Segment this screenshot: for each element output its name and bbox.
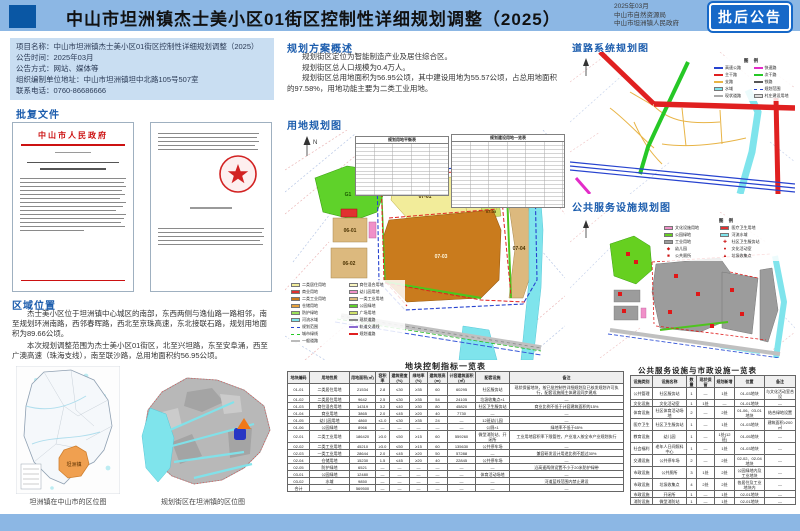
legend-label: 广场用地: [360, 310, 376, 316]
doc-text-line: [20, 182, 124, 183]
table-cell: 二类居住用地: [310, 396, 350, 403]
legend-item: 文化设施用地: [664, 225, 717, 231]
landuse-balance-mini-table: 规划用地平衡表: [355, 136, 449, 196]
legend-label: 河流水域: [302, 317, 318, 323]
legend-item: ●文化活动室: [720, 246, 790, 252]
table-cell: 6521: [350, 464, 376, 471]
data-table: 地块编码用地性质用地面积(㎡)容积率建筑密度(%)绿地率(%)建筑限高(m)计容…: [287, 371, 624, 492]
table-cell: 各居住及工业地块内: [735, 479, 765, 491]
table-cell: —: [510, 485, 624, 492]
legend-item: 河流水域: [291, 317, 346, 323]
data-table: 设施类别设施名称数量现状保留规划新增位置备注公共管理社区服务站1—1处01-03…: [630, 375, 796, 505]
table-row: 02-02二类工业用地45210≥3.0≤50≥1560135630公共停车场—: [288, 443, 624, 450]
column-header: 用地面积(㎡): [350, 372, 376, 384]
table-cell: ≥35: [410, 396, 428, 403]
table-cell: 市政设施: [631, 479, 653, 491]
legend-label: 现状道路: [360, 317, 376, 323]
doc-text-line: [158, 149, 258, 150]
table-cell: 01-03地块: [735, 443, 765, 455]
table-row: 社会福利老年人日间照料中心1—1处01-03地块—: [631, 443, 796, 455]
table-cell: 社区服务站: [476, 384, 510, 396]
table-cell: 135630: [448, 443, 476, 450]
legend-item: 主干路: [714, 72, 751, 78]
legend-swatch: [291, 334, 300, 335]
legend-item: 二类居住用地: [291, 282, 346, 288]
table-cell: —: [428, 478, 448, 485]
table-row: 01-03商住混合用地143193.2≤40≥308045820社区卫生服务站商…: [288, 403, 624, 410]
publish-date: 2025年03月: [614, 3, 679, 12]
doc-text-line: [158, 141, 259, 142]
text-line: 规划街区定位为智能制造产业及居住综合区。: [287, 52, 563, 63]
table-cell: 3865: [350, 410, 376, 417]
legend-item: 快速路: [754, 65, 791, 71]
doc-body-text: [20, 175, 126, 233]
parcel-label: 06-02: [343, 261, 356, 267]
publisher-info: 2025年03月 中山市自然资源局 中山市坦洲镇人民政府: [614, 3, 679, 29]
legend-swatch: [714, 67, 723, 69]
table-cell: ≥35: [410, 417, 428, 424]
table-cell: 公共停车场: [476, 457, 510, 464]
table-cell: 二类居住用地: [310, 384, 350, 396]
legend-label: 公园绿地: [360, 303, 376, 309]
table-cell: 2: [687, 455, 697, 467]
table-row: 02-03一类工业用地286442.0≤45≥205057288—兼容研发设计用…: [288, 450, 624, 457]
table-cell: 40: [428, 457, 448, 464]
text-line: 规划街区总用地面积为56.95公顷，其中建设用地为55.57公顷，占总用地面积的…: [287, 73, 563, 94]
table-cell: ≤1.0: [376, 417, 390, 424]
table-cell: 1: [687, 498, 697, 505]
table-cell: 与文化活动室合设: [765, 388, 796, 400]
block-control-table: 地块编码用地性质用地面积(㎡)容积率建筑密度(%)绿地率(%)建筑限高(m)计容…: [287, 371, 623, 492]
table-cell: 社区卫生服务站: [476, 403, 510, 410]
table-cell: 微型消防站、开闭所: [476, 431, 510, 443]
doc-subject-line: [40, 168, 106, 169]
table-row: 市政设施公共厕所31处2处公园绿地内及工业地块—: [631, 467, 796, 479]
legend-item: 公园绿地: [664, 232, 717, 238]
column-header: 数量: [687, 376, 697, 388]
landuse-map-legend: 二类居住用地商住混合用地商业用地幼儿园用地二类工业用地一类工业用地仓储用地公园绿…: [289, 280, 405, 346]
table-cell: ≤40: [390, 403, 410, 410]
table-cell: 01-05地块: [735, 431, 765, 443]
table-row: 体育设施社区体育活动场地2—2处01-06、03-01地块结合绿地设置: [631, 407, 796, 419]
table-cell: 9642: [350, 396, 376, 403]
legend-label: 轨道交通线: [360, 324, 380, 330]
table-cell: —: [697, 455, 715, 467]
legend-symbol-icon: ✚: [720, 240, 729, 245]
table-cell: 01-05: [288, 417, 310, 424]
table-cell: 186420: [350, 431, 376, 443]
table-cell: 1: [687, 419, 697, 431]
legend-item: 一类工业用地: [349, 296, 404, 302]
column-header: 位置: [735, 376, 765, 388]
official-seal-icon: [217, 153, 259, 195]
table-cell: —: [448, 485, 476, 492]
table-cell: —: [410, 485, 428, 492]
table-cell: —: [390, 485, 410, 492]
legend-item: 商业用地: [291, 289, 346, 295]
doc-sign-line: [190, 207, 232, 208]
table-cell: ≤50: [390, 443, 410, 450]
column-header: 备注: [510, 372, 624, 384]
table-cell: 体育活动场地: [476, 471, 510, 478]
table-cell: 文化设施: [631, 400, 653, 407]
table-cell: 80: [428, 403, 448, 410]
table-row: 02-05防护绿地6521——————沿高速两侧设置不小于20米防护绿带: [288, 464, 624, 471]
legend-title: 图 例: [714, 58, 790, 64]
legend-label: 水域: [725, 86, 733, 92]
doc-text-line: [158, 244, 263, 245]
region-description: 杰士美小区位于坦洲镇中心城区的南部，东西两侧与逸仙路一路相邻，南至规划环洲南路，…: [12, 309, 274, 363]
table-cell: 2处: [715, 467, 735, 479]
legend-item: 一般道路: [291, 338, 346, 344]
doc-footer-text: [158, 225, 264, 248]
legend-symbol-icon: ◆: [664, 247, 673, 252]
legend-item: 仓储用地: [291, 303, 346, 309]
table-cell: 河道蓝线范围内禁止建设: [510, 478, 624, 485]
text-line: 公告时间：2025年03月: [16, 52, 268, 63]
table-cell: 社区卫生服务站: [653, 419, 687, 431]
table-cell: —: [697, 431, 715, 443]
table-cell: ≤45: [390, 457, 410, 464]
table-row: 教育设施幼儿园1—1处(12班)01-05地块—: [631, 431, 796, 443]
doc-text-line: [20, 186, 126, 187]
table-cell: 2: [687, 407, 697, 419]
doc-title: 中山市人民政府: [20, 130, 126, 141]
table-cell: 老年人日间照料中心: [653, 443, 687, 455]
table-row: 文化设施文化活动室11处—01-01地块—: [631, 400, 796, 407]
column-header: 备注: [765, 376, 796, 388]
legend-item: 河流水域: [720, 232, 790, 238]
mini-table-title: 规划用地平衡表: [356, 137, 448, 144]
text-line: 项目名称：中山市坦洲镇杰士美小区01街区控制性详细规划调整（2025）: [16, 41, 268, 52]
doc-text-line: [20, 178, 126, 179]
table-cell: —: [410, 478, 428, 485]
table-cell: 仓储用地: [310, 457, 350, 464]
parcel-label: 07-04: [513, 246, 526, 252]
table-cell: 1处: [715, 498, 735, 505]
table-cell: 社会福利: [631, 443, 653, 455]
legend-label: 二类居住用地: [302, 282, 326, 288]
table-row: 03-02水域9850——————河道蓝线范围内禁止建设: [288, 478, 624, 485]
table-cell: 1: [687, 431, 697, 443]
table-cell: 教育设施: [631, 431, 653, 443]
table-cell: —: [410, 471, 428, 478]
table-cell: 1.5: [376, 457, 390, 464]
column-header: 规划新增: [715, 376, 735, 388]
table-cell: 公共管理: [631, 388, 653, 400]
table-cell: 12班幼儿园: [476, 417, 510, 424]
legend-label: 城市绿线: [302, 331, 318, 337]
table-cell: 公共停车场: [653, 455, 687, 467]
table-cell: 1处: [715, 443, 735, 455]
table-cell: 50: [428, 450, 448, 457]
caption-town-map: 规划街区在坦洲镇的区位图: [132, 497, 274, 507]
legend-swatch: [349, 283, 358, 287]
legend-item: 水域: [714, 86, 751, 92]
legend-label: 医疗卫生用地: [731, 225, 755, 231]
legend-label: 次干路: [765, 72, 777, 78]
legend-swatch: [714, 74, 723, 76]
legend-swatch: [291, 283, 300, 287]
doc-text-line: [20, 222, 121, 223]
legend-swatch: [349, 333, 358, 335]
table-cell: 社区体育活动场地: [653, 407, 687, 419]
table-cell: 01-01: [288, 384, 310, 396]
table-cell: ≤30: [390, 384, 410, 396]
table-cell: 交通设施: [631, 455, 653, 467]
legend-swatch: [754, 89, 763, 90]
table-cell: 2.0: [376, 450, 390, 457]
approval-doc-page-2: [150, 122, 272, 292]
table-cell: 7730: [448, 410, 476, 417]
text-line: 联系电话：0760-86686666: [16, 85, 268, 96]
table-cell: 幼儿园用地: [310, 417, 350, 424]
doc-text-line: [20, 194, 125, 195]
table-cell: 15230: [350, 457, 376, 464]
table-cell: 40: [428, 410, 448, 417]
facilities-map-legend: 图 例 文化设施用地医疗卫生用地公园绿地河流水域工业用地 ✚社区卫生服务站◆幼儿…: [662, 216, 792, 261]
table-cell: —: [510, 471, 624, 478]
doc-text-line: [158, 236, 264, 237]
table-row: 01-01二类居住用地215342.8≤30≥356060295社区服务站现状保…: [288, 384, 624, 396]
doc-text-line: [20, 230, 84, 231]
legend-swatch: [291, 304, 300, 308]
parcel-label: 06-01: [344, 228, 357, 234]
table-cell: —: [765, 443, 796, 455]
table-cell: 二类工业用地: [310, 431, 350, 443]
text-line: 公告方式：网站、媒体等: [16, 63, 268, 74]
doc-text-line: [158, 145, 255, 146]
table-cell: —: [390, 478, 410, 485]
table-cell: 12480: [350, 471, 376, 478]
table-cell: 公厕×1: [476, 424, 510, 431]
legend-item: 幼儿园用地: [349, 289, 404, 295]
legend-item: 规划道路: [349, 331, 404, 337]
table-cell: 01-03地块: [735, 419, 765, 431]
doc-text-line: [158, 133, 259, 134]
table-cell: 01-02: [288, 396, 310, 403]
table-row: 公共管理社区服务站1—1处01-03地块与文化活动室合设: [631, 388, 796, 400]
table-cell: —: [476, 485, 510, 492]
legend-swatch: [664, 226, 673, 230]
table-cell: —: [510, 417, 624, 424]
legend-label: 规划范围: [765, 86, 781, 92]
table-cell: ≥15: [410, 431, 428, 443]
table-cell: 垃圾收集点: [653, 479, 687, 491]
table-cell: —: [697, 491, 715, 498]
table-cell: 3: [687, 467, 697, 479]
legend-label: 文化活动室: [731, 246, 751, 252]
table-cell: 垃圾收集点×1: [476, 396, 510, 403]
legend-label: 仓储用地: [302, 303, 318, 309]
table-cell: 1: [687, 491, 697, 498]
table-cell: 569500: [350, 485, 376, 492]
table-cell: —: [697, 388, 715, 400]
table-header-row: 地块编码用地性质用地面积(㎡)容积率建筑密度(%)绿地率(%)建筑限高(m)计容…: [288, 372, 624, 384]
column-header: 地块编码: [288, 372, 310, 384]
approval-document: 中山市人民政府: [12, 122, 274, 292]
legend-item: 工业用地: [664, 239, 717, 245]
doc-text-line: [20, 190, 122, 191]
table-cell: 工业用地容积率下限管控，产业准入按全市产业规划执行: [510, 431, 624, 443]
table-cell: —: [476, 450, 510, 457]
table-cell: 03-02: [288, 478, 310, 485]
table-cell: 9850: [350, 478, 376, 485]
table-cell: ≥15: [410, 443, 428, 450]
legend-label: 规划范围: [302, 324, 318, 330]
table-cell: 24: [428, 417, 448, 424]
legend-item: 现状道路: [349, 317, 404, 323]
approval-doc-page-1: 中山市人民政府: [12, 122, 134, 292]
table-cell: 社区服务站: [653, 388, 687, 400]
table-cell: —: [476, 464, 510, 471]
legend-label: 村庄建设用地: [765, 93, 789, 99]
table-cell: 公共厕所: [653, 467, 687, 479]
table-cell: 02-01地块: [735, 498, 765, 505]
text-line: 组织编制单位地址：中山市坦洲镇坦中北路105号507室: [16, 74, 268, 85]
legend-item: 公园绿地: [349, 303, 404, 309]
table-cell: —: [376, 478, 390, 485]
region-paragraph-2: 本次规划调整范围为杰士美小区01街区，北至兴坦路，东至安阜涌，西至广澳高速（珠海…: [12, 341, 274, 361]
overview-text: 规划街区定位为智能制造产业及居住综合区。规划街区总人口规模为0.4万人。规划街区…: [287, 52, 563, 94]
town-location-map: [132, 372, 274, 490]
legend-label: 商业用地: [302, 289, 318, 295]
table-cell: 水域: [310, 478, 350, 485]
legend-item: 轨道交通线: [349, 324, 404, 330]
column-header: 配套设施: [476, 372, 510, 384]
table-cell: 01-01地块: [735, 400, 765, 407]
column-header: 设施名称: [653, 376, 687, 388]
legend-item: 现状道路: [714, 93, 751, 99]
road-system-map: 图 例 高速公路快速路主干路次干路支路 铁路水域规划范围现状道路村庄建设用地: [570, 52, 795, 194]
project-info-box: 项目名称：中山市坦洲镇杰士美小区01街区控制性详细规划调整（2025）公告时间：…: [10, 38, 274, 100]
table-cell: 02-03: [288, 450, 310, 457]
footer-band: [0, 514, 800, 531]
table-cell: 45210: [350, 443, 376, 450]
legend-item: 次干路: [754, 72, 791, 78]
table-cell: 公共停车场: [476, 443, 510, 450]
legend-label: 二类工业用地: [302, 296, 326, 302]
table-cell: —: [697, 443, 715, 455]
legend-swatch: [291, 318, 300, 322]
column-header: 设施类别: [631, 376, 653, 388]
table-cell: —: [476, 410, 510, 417]
table-cell: 60: [428, 443, 448, 450]
table-cell: 1: [687, 388, 697, 400]
table-cell: ≥30: [410, 403, 428, 410]
legend-label: 规划道路: [360, 331, 376, 337]
table-cell: ≤30: [390, 396, 410, 403]
table-cell: 现状保留地块，按已批控制性详细规划及已核发规划许可执行，配套设施随主体建设同步建…: [510, 384, 624, 396]
table-cell: ≥20: [410, 457, 428, 464]
legend-swatch: [291, 327, 300, 328]
legend-swatch: [349, 297, 358, 301]
legend-swatch: [664, 240, 673, 244]
table-cell: 1处: [715, 419, 735, 431]
publisher-org-2: 中山市坦洲镇人民政府: [614, 20, 679, 29]
table-cell: 559260: [448, 431, 476, 443]
legend-swatch: [291, 290, 300, 294]
table-cell: 市政设施: [631, 467, 653, 479]
doc-text-line: [20, 218, 124, 219]
status-badge: 批后公告: [709, 3, 791, 31]
gov-logo-icon: [9, 5, 36, 28]
table-cell: —: [697, 498, 715, 505]
table-cell: 24105: [448, 396, 476, 403]
legend-label: 现状道路: [725, 93, 741, 99]
table-cell: 2.8: [376, 384, 390, 396]
mini-table-title: 规划建设用地一览表: [452, 135, 564, 142]
table-row: 消防设施微型消防站1—1处02-01地块—: [631, 498, 796, 505]
table-cell: —: [410, 424, 428, 431]
legend-item: 城市绿线: [291, 331, 346, 337]
legend-label: 公共厕所: [675, 253, 691, 259]
table-cell: 02-02: [288, 443, 310, 450]
legend-swatch: [349, 304, 358, 308]
legend-label: 主干路: [725, 72, 737, 78]
city-map-label: 坦洲镇: [66, 461, 81, 468]
table-cell: 1: [687, 400, 697, 407]
table-row: 合计—569500———————: [288, 485, 624, 492]
table-cell: —: [765, 400, 796, 407]
legend-label: 社区卫生服务站: [731, 239, 759, 245]
table-cell: —: [448, 417, 476, 424]
doc-text-line: [158, 228, 264, 229]
legend-swatch: [720, 226, 729, 230]
table-cell: 2.0: [376, 410, 390, 417]
table-cell: —: [765, 491, 796, 498]
table-cell: 一类工业用地: [310, 450, 350, 457]
table-cell: 文化活动室: [653, 400, 687, 407]
table-cell: 01-06、03-01地块: [735, 407, 765, 419]
legend-symbol-icon: ■: [664, 254, 673, 259]
table-cell: ≤50: [390, 431, 410, 443]
table-cell: 60295: [448, 384, 476, 396]
legend-label: 商住混合用地: [360, 282, 384, 288]
legend-item: 高速公路: [714, 65, 751, 71]
table-cell: ≥20: [410, 410, 428, 417]
table-cell: —: [510, 410, 624, 417]
doc-text-line: [158, 240, 260, 241]
table-cell: 体育设施: [631, 407, 653, 419]
table-cell: 01-04: [288, 410, 310, 417]
table-cell: 1处: [715, 491, 735, 498]
city-location-map: 坦洲镇: [16, 366, 120, 494]
table-cell: 02-01地块: [735, 491, 765, 498]
doc-text-line: [20, 198, 120, 199]
table-cell: 公园绿地内及工业地块: [735, 467, 765, 479]
legend-swatch: [720, 233, 729, 237]
table-cell: ≤30: [390, 417, 410, 424]
table-cell: 22845: [448, 457, 476, 464]
table-cell: 建筑面积≥200㎡: [765, 419, 796, 431]
table-row: 01-02二类居住用地96422.5≤30≥355424105垃圾收集点×1—: [288, 396, 624, 403]
doc-red-rule: [21, 280, 125, 282]
legend-label: 河流水域: [731, 232, 747, 238]
legend-item: 广场用地: [349, 310, 404, 316]
landuse-planning-map: G1 07-01 07-02 07-03 07-04 07-05 06-01 0…: [285, 130, 565, 360]
legend-symbol-icon: ▲: [720, 254, 729, 259]
table-cell: 二类工业用地: [310, 443, 350, 450]
table-cell: 01-03地块: [735, 388, 765, 400]
legend-label: 高速公路: [725, 65, 741, 71]
table-row: 03-01公园绿地12480—————体育活动场地—: [288, 471, 624, 478]
table-cell: 54: [428, 396, 448, 403]
table-cell: 消防设施: [631, 498, 653, 505]
table-cell: 2处: [697, 479, 715, 491]
doc-red-rule: [21, 144, 125, 146]
legend-swatch: [714, 95, 723, 97]
